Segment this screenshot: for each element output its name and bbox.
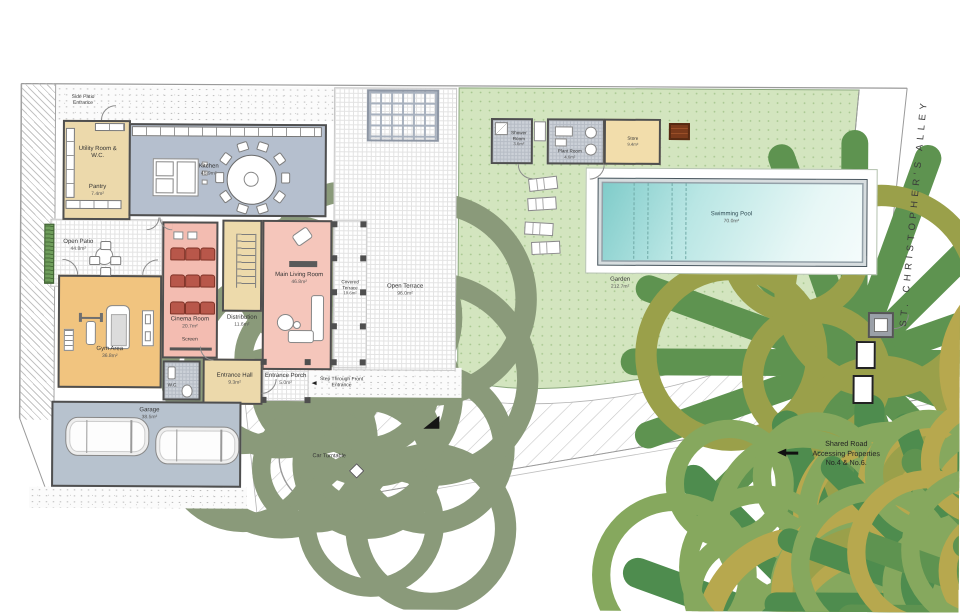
distribution-label: Distribution11.6m² — [219, 315, 265, 328]
pantry-room: Utility Room & W.C. Pantry7.4m² — [62, 120, 131, 220]
living-label: Main Living Room46.8m² — [270, 272, 328, 285]
cinema-seat-icon — [200, 302, 215, 315]
pantry-label: Pantry7.4m² — [77, 184, 119, 197]
level-marker-icon — [423, 416, 439, 429]
swivel-chair — [277, 314, 294, 331]
cinema-seat-icon — [185, 301, 200, 314]
weight-stack — [145, 331, 151, 341]
side-patio-entrance-label: Side Patio Entrance — [65, 94, 101, 106]
cinema-room: Cinema Room20.7m² Screen — [162, 221, 219, 358]
column-icon — [260, 397, 266, 403]
sofa — [288, 330, 314, 343]
gym-room: Gym Area36.8m² — [58, 275, 163, 389]
cinema-seat-icon — [170, 301, 185, 314]
bin-store — [852, 375, 873, 404]
stool-icon — [202, 180, 208, 185]
car-icon — [65, 417, 149, 456]
toilet-icon — [182, 384, 193, 397]
column-icon — [360, 221, 366, 227]
treadmill-icon — [106, 305, 130, 349]
gym-bench — [86, 321, 96, 345]
cabinet-run — [132, 126, 322, 137]
sun-lounger-icon — [527, 196, 557, 211]
bench-press-icon — [79, 313, 82, 322]
column-icon — [360, 255, 366, 261]
plant-tank-icon — [585, 144, 597, 156]
stairs — [236, 234, 256, 288]
cabinet-run — [66, 128, 75, 198]
garage-label: Garage38.5m² — [127, 407, 171, 420]
island-unit — [156, 178, 174, 193]
site-plan: Utility Room & W.C. Pantry7.4m² Kitchen4… — [0, 0, 960, 613]
sun-lounger-icon — [531, 241, 561, 255]
bench-press-icon — [80, 317, 102, 319]
console-unit — [173, 231, 183, 239]
plant-tank-icon — [585, 127, 597, 139]
column-icon — [360, 359, 366, 365]
garage-room: Garage38.5m² — [51, 401, 241, 488]
sun-lounger-icon — [524, 221, 554, 236]
cable-machine-icon — [142, 310, 154, 346]
shower-room-label: Shower Room3.6m² — [507, 130, 531, 146]
column-icon — [331, 323, 337, 329]
chair-icon — [110, 256, 121, 265]
column-icon — [331, 255, 337, 261]
plant-room-label: Plant Room4.6m² — [557, 148, 583, 159]
entrance-porch-label: Entrance Porch5.0m² — [263, 373, 309, 386]
column-icon — [304, 397, 310, 403]
open-patio-label: Open Patio44.8m² — [58, 239, 98, 252]
cinema-seat-icon — [170, 247, 185, 260]
store-room: Store9.4m² — [604, 119, 661, 165]
weight-stack — [145, 314, 151, 324]
column-icon — [305, 359, 311, 365]
chair-icon — [100, 241, 111, 250]
kitchen-room: Kitchen46.9m² — [128, 123, 326, 217]
gravel-strip-bottom — [29, 487, 247, 509]
dining-table-center — [244, 172, 259, 187]
column-icon — [360, 323, 366, 329]
cinema-seat-icon — [170, 274, 185, 287]
utility-label: Utility Room & W.C. — [77, 146, 119, 161]
column-icon — [261, 359, 267, 365]
bench-press-icon — [100, 313, 103, 322]
chair-icon — [100, 267, 111, 276]
treadmill-belt — [111, 314, 127, 346]
garden-label: Garden212.7m² — [598, 277, 642, 290]
living-room: Main Living Room46.8m² — [262, 220, 333, 370]
island-unit — [156, 161, 174, 176]
car-turntable-label: Car Turntable — [299, 453, 359, 460]
gym-label: Gym Area36.8m² — [86, 346, 134, 359]
dumbbell-rack-icon — [64, 329, 74, 351]
plant-room: Plant Room4.6m² — [547, 118, 605, 164]
bin-store — [856, 341, 876, 369]
wc-label: W.C. — [166, 382, 180, 388]
cinema-label: Cinema Room20.7m² — [167, 316, 213, 329]
pergola — [367, 89, 439, 141]
entrance-arrow-icon — [312, 381, 317, 385]
store-label: Store9.4m² — [616, 136, 650, 147]
bench-unit — [534, 121, 546, 141]
shared-road-label: Shared Road Accessing Properties No.4 & … — [798, 439, 894, 469]
cinema-seat-icon — [200, 248, 215, 261]
chair-icon — [281, 172, 290, 183]
screen-label: Screen — [176, 336, 204, 342]
plant-unit — [555, 138, 567, 146]
shared-road-arrow-icon — [785, 452, 798, 455]
shower-room: Shower Room3.6m² — [491, 118, 533, 164]
distribution-room — [222, 220, 262, 312]
dining-table — [227, 155, 277, 205]
shared-road-arrow-icon — [777, 448, 786, 456]
chair-icon — [89, 256, 100, 265]
cabinet-run — [65, 200, 121, 209]
gate-structure — [868, 312, 894, 338]
console-unit — [187, 231, 197, 239]
cabinet-run — [95, 123, 125, 131]
covered-terrace-label: Covered Terrace19.6m² — [336, 279, 364, 295]
chair-icon — [215, 172, 224, 183]
storage-bench — [669, 123, 690, 140]
lounge-chair — [291, 226, 313, 247]
wc-room: W.C. — [162, 360, 200, 400]
sink-icon — [168, 366, 176, 379]
pool-house: Shower Room3.6m² Plant Room4.6m² Store9.… — [491, 118, 661, 167]
planter-strip — [44, 224, 54, 284]
column-icon — [331, 359, 337, 365]
swimming-pool-label: Swimming Pool70.0m² — [671, 211, 791, 225]
step-through-label: Step Through Front Entrance — [318, 376, 366, 388]
tv-unit — [289, 261, 317, 267]
entrance-hall: Entrance Hall9.3m² — [202, 359, 262, 405]
entrance-hall-label: Entrance Hall9.3m² — [209, 373, 261, 386]
open-terrace-label: Open Terrace96.0m² — [382, 283, 428, 296]
cinema-seat-icon — [185, 247, 200, 260]
plant-unit — [555, 126, 573, 136]
gate-icon — [874, 318, 888, 332]
column-icon — [331, 221, 337, 227]
ottoman — [293, 321, 301, 329]
cinema-seat-icon — [200, 275, 215, 288]
cinema-seat-icon — [185, 274, 200, 287]
car-icon — [155, 426, 239, 464]
